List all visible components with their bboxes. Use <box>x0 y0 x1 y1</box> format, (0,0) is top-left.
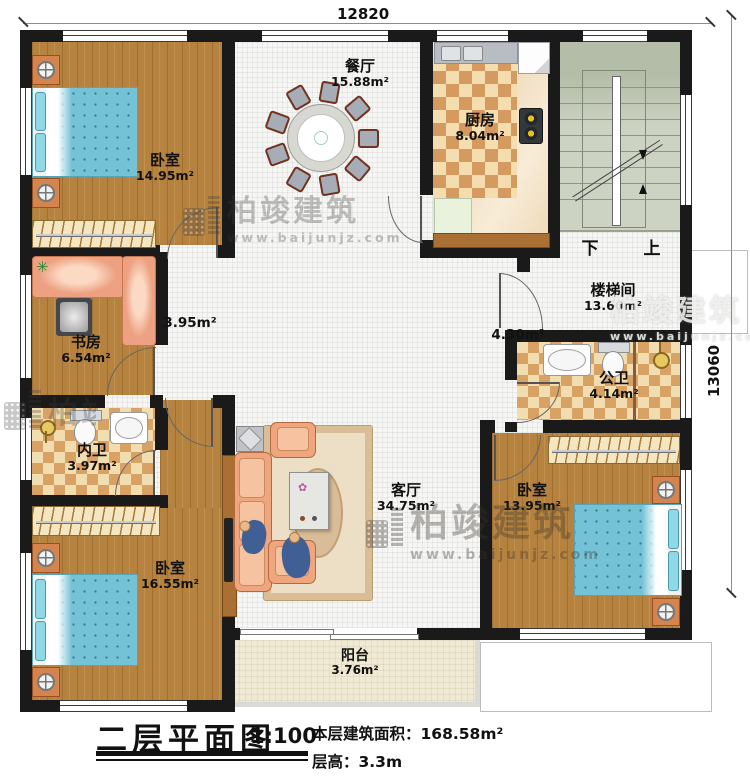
nightstand <box>32 178 60 208</box>
bed <box>32 574 138 666</box>
wall <box>543 420 690 433</box>
wardrobe <box>32 220 156 248</box>
room-label-study: 书房6.54m² <box>61 334 110 366</box>
bed-sheet <box>46 575 72 665</box>
stair-arrow-icon <box>639 150 647 160</box>
lamp-icon <box>37 61 55 79</box>
door-leaf <box>211 398 213 446</box>
room-label-bedroom-bottom-left: 卧室16.55m² <box>141 560 199 592</box>
desk-return <box>122 256 156 346</box>
wardrobe <box>548 436 680 464</box>
door-leaf <box>153 347 155 395</box>
burner-icon <box>525 112 538 125</box>
wall <box>20 395 105 408</box>
shower-head-icon <box>653 352 670 369</box>
side-table <box>236 426 264 452</box>
nightstand <box>32 55 60 85</box>
wall <box>222 615 235 707</box>
wall <box>222 30 235 258</box>
room-label-bedroom-bottom-right: 卧室13.95m² <box>503 482 561 514</box>
lamp-icon <box>37 184 55 202</box>
table-centerpiece <box>314 131 328 145</box>
burner-icon <box>525 127 538 140</box>
window <box>63 30 187 42</box>
wall <box>420 30 433 195</box>
computer-monitor <box>56 298 92 336</box>
room-label-stairwell: 楼梯间13.60m² <box>584 282 642 314</box>
stair-up-label: 上 <box>644 234 661 259</box>
chair <box>318 173 340 197</box>
wall <box>155 408 168 450</box>
window <box>262 30 388 42</box>
room-label-living: 客厅34.75m² <box>377 482 435 514</box>
stair-down-label: 下 <box>582 234 599 259</box>
window <box>20 88 32 175</box>
room-label-dining: 餐厅15.88m² <box>331 58 389 90</box>
kitchen-counter <box>434 42 518 64</box>
sofa-cushion <box>277 427 309 451</box>
pillow <box>35 579 46 619</box>
window <box>583 30 647 42</box>
sink-basin <box>441 46 461 61</box>
sliding-door <box>240 629 334 635</box>
stove <box>519 108 543 144</box>
shower-head-icon <box>40 420 56 436</box>
wall <box>20 30 32 88</box>
bathroom-sink <box>110 412 148 444</box>
window <box>20 275 32 378</box>
nightstand <box>32 667 60 697</box>
dimension-tick <box>705 17 715 27</box>
person-head <box>239 520 251 532</box>
pillow <box>35 92 46 131</box>
nightstand <box>652 598 680 626</box>
pillow <box>668 551 679 591</box>
window <box>680 95 692 205</box>
wall <box>680 30 692 95</box>
flower-icon: ✿ <box>298 481 307 494</box>
pillow <box>668 509 679 549</box>
wall <box>505 422 517 432</box>
cup-icon <box>300 516 305 521</box>
wall <box>20 480 32 553</box>
cup-icon <box>312 516 317 521</box>
kitchen-appliance <box>434 198 472 238</box>
room-label-corridor: 4.30m² <box>491 328 544 344</box>
chair <box>358 129 379 148</box>
window <box>680 345 692 418</box>
wall <box>645 628 692 640</box>
title-underline <box>96 751 308 756</box>
lamp-icon <box>37 673 55 691</box>
window <box>437 30 508 42</box>
side-table-top <box>238 427 262 451</box>
sink-basin <box>463 46 483 61</box>
sink-bowl <box>548 349 586 371</box>
room-label-private-bath: 内卫3.97m² <box>67 442 116 474</box>
wardrobe-rail <box>36 521 156 523</box>
sliding-door <box>330 634 419 640</box>
bed-sheet <box>46 88 72 176</box>
door-leaf <box>216 207 218 258</box>
nightstand <box>652 476 680 504</box>
room-label-bedroom-top-left: 卧室14.95m² <box>136 152 194 184</box>
kitchen-cabinet <box>433 233 550 248</box>
room-label-balcony: 阳台 3.76m² <box>331 648 378 678</box>
window <box>60 700 187 712</box>
wall <box>218 245 235 258</box>
title-underline <box>96 759 308 761</box>
nightstand <box>32 543 60 573</box>
door-leaf <box>499 273 501 328</box>
stair-arrow-icon <box>639 184 647 194</box>
door-leaf <box>517 382 559 384</box>
floor-area-text: 本层建筑面积：168.58m² <box>312 722 503 744</box>
wall <box>508 30 583 42</box>
shower-hose <box>659 342 661 353</box>
floor-plan-canvas: 下 上 ✳ ✿ <box>0 0 750 782</box>
bed <box>574 504 682 596</box>
tv <box>224 518 233 582</box>
stair-railing <box>612 76 621 226</box>
wall <box>505 342 517 380</box>
floor-height-text: 层高：3.3m <box>312 750 402 772</box>
dimension-line-right <box>731 16 732 594</box>
lamp-icon <box>657 603 675 621</box>
pillow <box>35 621 46 661</box>
shower-hose <box>45 431 47 443</box>
wall <box>480 420 495 433</box>
lamp-icon <box>657 481 675 499</box>
window <box>520 628 645 640</box>
terrace-outline-bottom-right <box>480 642 712 712</box>
room-label-hallway: 3.95m² <box>163 316 216 332</box>
sofa-cushion <box>239 458 265 498</box>
pillow <box>35 133 46 172</box>
wall <box>480 433 492 628</box>
bathroom-sink <box>543 344 591 376</box>
sink-bowl <box>115 417 143 439</box>
room-label-public-bath: 公卫4.14m² <box>589 370 638 402</box>
person-head <box>288 532 300 544</box>
dimension-tick <box>18 17 28 27</box>
wardrobe-rail <box>552 450 676 452</box>
window <box>20 418 32 480</box>
dimension-line-top <box>23 23 711 24</box>
wall <box>417 628 492 640</box>
wall <box>20 700 60 712</box>
dimension-top-value: 12820 <box>337 5 389 23</box>
wall <box>517 258 530 272</box>
dimension-right-value: 13060 <box>705 345 723 397</box>
plan-scale: 1:100 <box>250 724 317 748</box>
wall <box>20 175 32 275</box>
wardrobe-rail <box>36 234 152 236</box>
door-leaf <box>153 450 155 495</box>
wardrobe <box>32 506 160 536</box>
plant-icon: ✳ <box>36 258 49 276</box>
bed <box>32 87 138 177</box>
room-label-kitchen: 厨房8.04m² <box>455 112 504 144</box>
door-leaf <box>494 435 496 480</box>
stair-edge <box>560 230 680 232</box>
window <box>20 553 32 650</box>
lamp-icon <box>37 549 55 567</box>
wall <box>680 205 692 345</box>
bed-sheet <box>642 505 668 595</box>
fridge <box>518 42 550 74</box>
eave-outline-right <box>688 250 748 334</box>
door-leaf <box>420 196 422 242</box>
wall <box>222 395 235 455</box>
armchair <box>270 422 316 458</box>
coffee-table: ✿ <box>289 472 329 530</box>
monitor-screen <box>60 302 88 332</box>
wall <box>150 395 163 408</box>
